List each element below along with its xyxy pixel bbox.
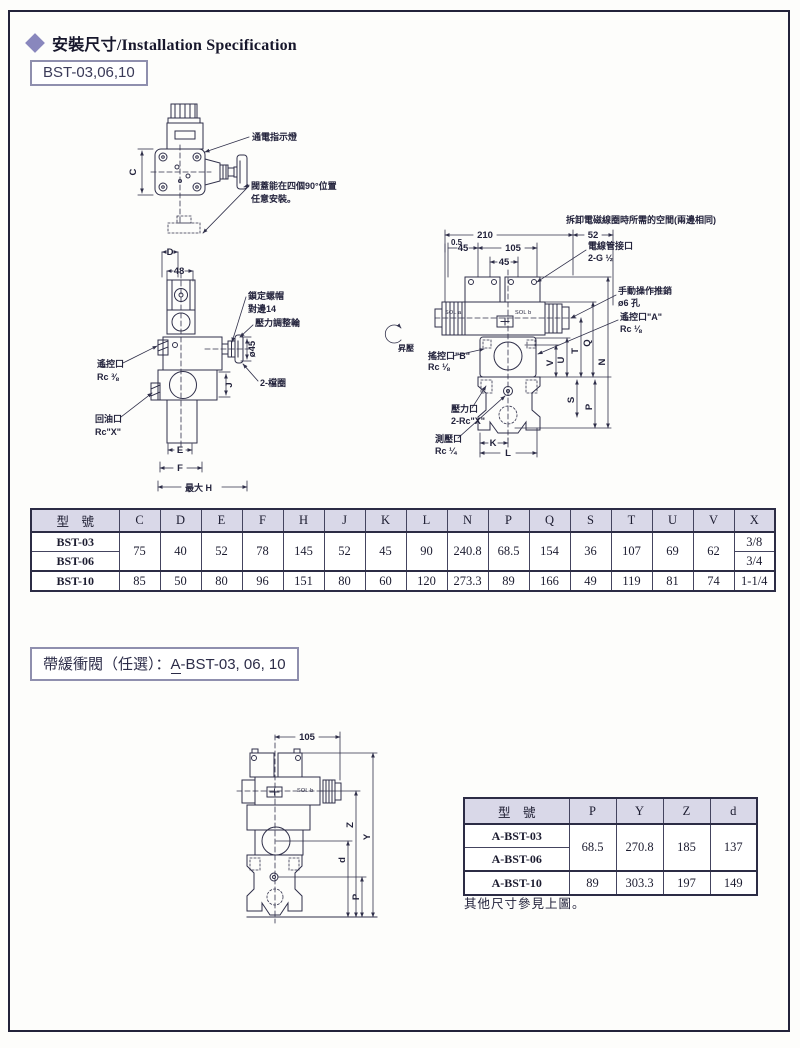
col-header-model: 型 號 [31,509,119,532]
label-manual-pin-2: ø6 孔 [618,297,640,308]
model-series-box: BST-03,06,10 [30,60,148,86]
col-header: L [406,509,447,532]
label-sol-b: SOL b [297,788,313,794]
dim-label-c: C [128,168,139,175]
dim-label-v: V [545,359,556,366]
dim-cell: 107 [611,532,652,571]
dim-cell: 52 [324,532,365,571]
dim-cell: 273.3 [447,571,488,591]
dim-cell: 96 [242,571,283,591]
label-locknut-2: 對邊14 [248,303,276,314]
label-coil-removal-space: 拆卸電磁線圈時所需的空間(兩邊相同) [566,214,716,225]
dim-label-n: N [597,358,608,365]
dimension-lines [275,732,377,917]
buffer-valve-option-box: 帶緩衝閥（任選）：A-BST-03, 06, 10 [30,647,299,681]
col-header: S [570,509,611,532]
label-port-b-1: 搖控口"B" [428,350,470,361]
dim-cell: 119 [611,571,652,591]
dim-cell: 197 [663,871,710,895]
label-cover-note-2: 任意安裝。 [250,193,296,204]
dim-label-45b: 45 [499,257,510,268]
dim-cell: 52 [201,532,242,571]
dim-label-105: 105 [505,243,522,254]
col-header: D [160,509,201,532]
model-cell: BST-03 [31,532,119,552]
figure-valve-front-view: D 48 鎖定螺帽 對邊14 壓力調整輪 ø45 2-檔圈 遙控口 Rc ⅜ 回… [85,245,347,503]
label-manual-pin-1: 手動操作推銷 [618,285,672,296]
dim-label-f: F [177,463,183,474]
valve-outline [151,280,243,443]
dim-label-j: J [224,382,235,387]
label-gauge-port-1: 測壓口 [435,433,462,444]
label-return-port-2: Rc"X" [95,427,121,437]
hidden-detail-lines [481,340,537,424]
dim-label-105: 105 [299,732,316,743]
dim-cell-x: 3/8 [734,532,775,552]
label-port-a-2: Rc ⅛ [620,324,642,334]
dim-label-s: S [566,397,577,403]
figure-abst-valve-view: 105 SOL b d Z Y P [225,725,440,963]
dim-cell: 270.8 [616,824,663,871]
col-header: C [119,509,160,532]
dim-cell: 81 [652,571,693,591]
dim-cell: 120 [406,571,447,591]
dim-cell: 68.5 [488,532,529,571]
col-header: d [710,798,757,824]
label-conduit-2: 2-G ½ [588,253,614,263]
dim-label-52: 52 [588,230,599,241]
option-rest: -BST-03, 06, 10 [181,656,286,673]
label-rings: 2-檔圈 [260,377,286,388]
label-pressure-port-1: 壓力口 [451,403,478,414]
dim-label-dia45: ø45 [247,340,258,357]
dim-cell: 75 [119,532,160,571]
table-footnote: 其他尺寸參見上圖。 [464,893,586,912]
table-header-row: 型 號 C D E F H J K L N P Q S T U V X [31,509,775,532]
col-header: U [652,509,693,532]
dim-cell: 36 [570,532,611,571]
label-locknut-1: 鎖定螺帽 [248,290,284,301]
option-underlined-a: A [171,656,181,674]
dim-label-e: E [177,445,183,456]
model-cell: BST-06 [31,552,119,572]
model-cell: A-BST-10 [464,871,569,895]
dim-label-u: U [556,356,567,363]
dim-cell: 303.3 [616,871,663,895]
dim-cell: 45 [365,532,406,571]
dim-cell: 166 [529,571,570,591]
dim-label-l: L [505,448,511,459]
dimension-table-bst: 型 號 C D E F H J K L N P Q S T U V X BST-… [30,508,776,592]
centerlines [181,273,253,448]
col-header: Q [529,509,570,532]
diamond-icon [25,33,45,53]
label-sol-a: SOL a [445,310,462,316]
dim-cell: 80 [201,571,242,591]
col-header: V [693,509,734,532]
dim-cell: 89 [569,871,616,895]
label-remote-port-2: Rc ⅜ [97,372,119,382]
dim-label-k: K [490,438,497,449]
figure-valve-solenoid-view: C 通電指示燈 閥蓋能在四個90°位置 任意安裝。 [125,95,405,245]
col-header: N [447,509,488,532]
col-header: H [283,509,324,532]
dim-label-y: Y [362,833,373,840]
valve-outline [242,749,377,917]
dim-label-210: 210 [477,230,493,241]
dim-label-p: P [584,403,595,410]
col-header: P [569,798,616,824]
dim-cell: 69 [652,532,693,571]
dim-cell-x: 1-1/4 [734,571,775,591]
col-header: E [201,509,242,532]
dim-cell: 78 [242,532,283,571]
model-cell: A-BST-03 [464,824,569,848]
table-row: BST-10 85 50 80 96 151 80 60 120 273.3 8… [31,571,775,591]
dim-cell: 185 [663,824,710,871]
label-conduit-1: 電線管接口 [588,240,633,251]
col-header: J [324,509,365,532]
dim-label-t: T [570,348,581,354]
dim-cell: 50 [160,571,201,591]
dimension-table-abst: 型 號 P Y Z d A-BST-03 68.5 270.8 185 137 … [463,797,758,896]
option-prefix: 帶緩衝閥（任選）： [43,656,171,673]
col-header: Y [616,798,663,824]
dim-label-p: P [351,893,362,900]
valve-outline [155,104,247,195]
col-header: K [365,509,406,532]
label-pressure-rise: 昇壓 [398,343,414,353]
dim-cell: 68.5 [569,824,616,871]
label-remote-port-1: 遙控口 [97,358,124,369]
catalog-page: 安裝尺寸/Installation Specification BST-03,0… [0,0,800,1048]
col-header: P [488,509,529,532]
dim-label-d: d [337,857,348,863]
dim-label-48: 48 [174,266,185,277]
dim-label-d: D [167,247,174,258]
dim-label-q: Q [582,339,593,346]
dim-cell: 240.8 [447,532,488,571]
dim-cell: 151 [283,571,324,591]
model-cell: A-BST-06 [464,848,569,872]
dim-cell: 74 [693,571,734,591]
dim-cell: 62 [693,532,734,571]
col-header: T [611,509,652,532]
label-port-a-1: 遙控口"A" [620,311,662,322]
dim-cell: 137 [710,824,757,871]
table-header-row: 型 號 P Y Z d [464,798,757,824]
label-pressure-port-2: 2-Rc"X" [451,416,485,426]
label-pressure-adjuster: 壓力調整輪 [255,317,301,328]
table-row: BST-03 75 40 52 78 145 52 45 90 240.8 68… [31,532,775,552]
phantom-cover-position [168,216,200,233]
figure-solenoid-valve-dimensions: 拆卸電磁線圈時所需的空間(兩邊相同) 210 52 0.5 45 105 45 … [385,210,787,482]
dim-label-45a: 45 [458,243,469,254]
dim-cell: 80 [324,571,365,591]
label-cover-note-1: 閥蓋能在四個90°位置 [251,180,337,191]
col-header: Z [663,798,710,824]
dim-cell: 145 [283,532,324,571]
label-port-b-2: Rc ⅛ [428,362,450,372]
table-row: A-BST-10 89 303.3 197 149 [464,871,757,895]
col-header: X [734,509,775,532]
label-gauge-port-2: Rc ¼ [435,446,458,456]
label-power-indicator: 通電指示燈 [252,131,298,142]
col-header: F [242,509,283,532]
hidden-detail-lines [250,858,299,905]
dim-cell: 85 [119,571,160,591]
dim-label-z: Z [345,822,356,828]
dim-cell: 90 [406,532,447,571]
page-title: 安裝尺寸/Installation Specification [52,31,297,55]
section-title: 安裝尺寸/Installation Specification [28,31,297,55]
dim-cell: 60 [365,571,406,591]
dim-cell: 40 [160,532,201,571]
table-row: A-BST-03 68.5 270.8 185 137 [464,824,757,848]
dim-cell: 89 [488,571,529,591]
col-header-model: 型 號 [464,798,569,824]
dim-cell: 49 [570,571,611,591]
label-return-port-1: 回油口 [95,413,122,424]
dim-cell-x: 3/4 [734,552,775,572]
model-cell: BST-10 [31,571,119,591]
dim-cell: 149 [710,871,757,895]
dim-cell: 154 [529,532,570,571]
label-sol-b: SOL b [515,310,531,316]
dim-label-max-h: 最大 H [185,482,212,493]
